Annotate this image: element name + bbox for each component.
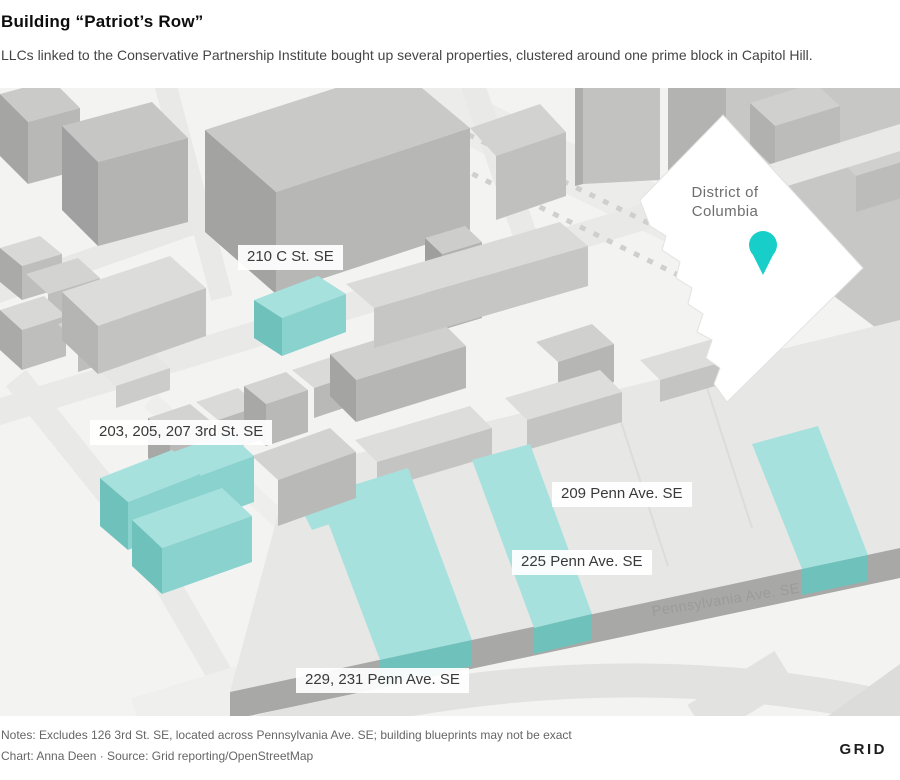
footer-credit: Chart: Anna Deen · Source: Grid reportin… <box>1 749 899 763</box>
label-225-penn: 225 Penn Ave. SE <box>512 550 652 575</box>
label-203-205-207: 203, 205, 207 3rd St. SE <box>90 420 272 445</box>
wall <box>583 88 660 184</box>
map-3d-view: District of Columbia 210 C St. SE 203, 2… <box>0 88 900 716</box>
subtitle: LLCs linked to the Conservative Partners… <box>1 46 899 65</box>
footer-notes: Notes: Excludes 126 3rd St. SE, located … <box>1 728 899 742</box>
map-canvas: District of Columbia <box>0 88 900 716</box>
grid-logo: GRID <box>840 741 888 758</box>
header: Building “Patriot’s Row” LLCs linked to … <box>1 0 899 65</box>
wall <box>575 88 583 186</box>
page-title: Building “Patriot’s Row” <box>1 12 899 32</box>
footer: Notes: Excludes 126 3rd St. SE, located … <box>1 724 899 763</box>
inset-region-label-line2: Columbia <box>692 203 759 220</box>
label-209-penn: 209 Penn Ave. SE <box>552 482 692 507</box>
label-210-c-st: 210 C St. SE <box>238 245 343 270</box>
label-229-231-penn: 229, 231 Penn Ave. SE <box>296 668 469 693</box>
inset-region-label-line1: District of <box>692 184 759 201</box>
